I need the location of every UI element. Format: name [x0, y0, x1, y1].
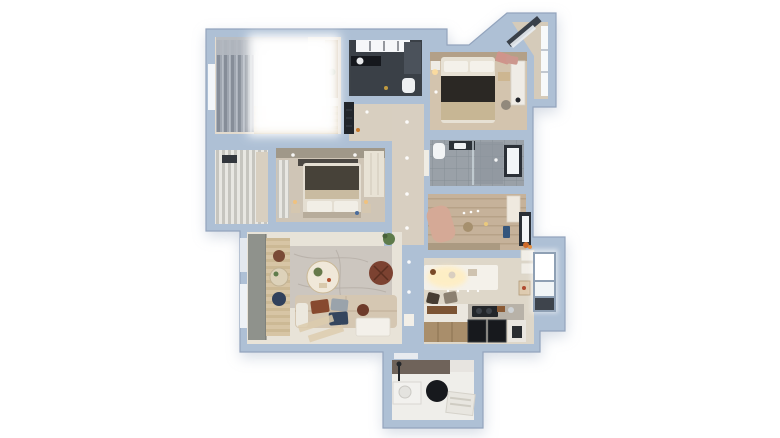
- corridor-spot3: [405, 192, 409, 196]
- table-leg4: [477, 290, 479, 292]
- living-decor-navy: [272, 292, 286, 306]
- balcony-b-beanbag: [426, 380, 448, 402]
- roomb-shelf: [428, 243, 500, 250]
- floor-plan-stage: [0, 0, 780, 438]
- corridor-door: [424, 150, 429, 176]
- living-side-table: [270, 268, 288, 286]
- kitchen-island-mat: [427, 306, 457, 314]
- bathroom1-vanity: [351, 56, 381, 66]
- bedroom2-pillow-right: [334, 201, 358, 212]
- balcony-b-lamp-head: [397, 362, 402, 367]
- living-plant-dark: [383, 234, 388, 239]
- kitchen-brown-box: [497, 306, 505, 312]
- roomb-blue-panel: [503, 226, 510, 238]
- coffee-table-berry: [327, 278, 331, 282]
- dining-bottle: [430, 269, 436, 275]
- dining-chair2: [443, 291, 458, 304]
- kitchen-black-cabinet2: [488, 320, 506, 342]
- kitchen-kettle: [508, 307, 514, 313]
- pillow-gray: [330, 298, 348, 312]
- table-leg1: [447, 290, 449, 292]
- entry-orange-item: [356, 128, 360, 132]
- bedroom2-wardrobe: [364, 151, 384, 197]
- coffee-table-plant: [314, 268, 323, 277]
- bedroom2-lamp-left: [293, 200, 297, 204]
- window-glare-core: [262, 46, 326, 126]
- bedroom2-headboard: [303, 212, 361, 218]
- bedroom2-spotlight1: [291, 153, 295, 157]
- sofa-ottoman: [357, 304, 369, 316]
- living-balcony-window1: [240, 238, 247, 272]
- dining-box: [468, 269, 477, 276]
- coffee-table-tray: [319, 283, 327, 288]
- kitchen-window-pane2: [535, 282, 554, 296]
- bathroom2-sink: [454, 143, 466, 149]
- bedroom1-pouf: [501, 100, 511, 110]
- bedroom1-pillow-left: [444, 61, 468, 72]
- balcony-b-accent-wall: [392, 360, 450, 374]
- living-side-plant: [274, 272, 279, 277]
- bedroom1-throw: [441, 102, 495, 120]
- bedroom1-lamp-glow: [432, 69, 438, 75]
- roomb-cabinet: [507, 196, 520, 222]
- table-leg2: [457, 290, 459, 292]
- entry-hall-floor: [349, 104, 392, 141]
- living-decor-brown: [273, 250, 285, 262]
- balcony-b-door: [394, 353, 418, 359]
- bedroom2-spotlight2: [353, 153, 357, 157]
- roomb-spot3: [477, 210, 480, 213]
- bathroom2-spotlight: [494, 158, 497, 161]
- bathroom1-brass-item: [384, 86, 388, 90]
- corridor-floor: [392, 104, 424, 245]
- bedroom1-duvet: [441, 76, 495, 104]
- kitchen-black-cabinet1: [468, 320, 486, 342]
- bedroom2-curtain: [277, 160, 289, 218]
- corridor-spot2: [405, 156, 409, 160]
- bedroom1-nightstand-left: [431, 61, 440, 70]
- divider-spot2: [407, 290, 411, 294]
- kitchen-wood-front: [424, 322, 468, 342]
- corridor-spot1: [405, 120, 409, 124]
- roomb-spot1: [463, 212, 466, 215]
- washer-door: [399, 386, 411, 398]
- roomb-window-pane: [522, 216, 529, 242]
- table-leg3: [467, 290, 469, 292]
- bedroom2-nightstand-left: [291, 204, 300, 213]
- dining-plate: [449, 272, 456, 279]
- living-tv-cabinet: [248, 234, 266, 340]
- living-white-table: [356, 318, 390, 336]
- floor-plan-svg: [0, 0, 780, 438]
- kitchen-cabinet-inset: [512, 326, 522, 338]
- pillow-brown: [310, 299, 330, 314]
- kitchen-cooktop: [472, 306, 498, 317]
- bathroom1-window: [356, 40, 410, 52]
- living-balcony-window2: [240, 284, 247, 328]
- bathroom1-marble-panel: [404, 42, 421, 74]
- kitchen-flowers2: [528, 245, 532, 249]
- balcony-tr-window: [541, 26, 548, 96]
- study-floor-strip: [256, 152, 268, 222]
- cooktop-burner1: [476, 308, 482, 314]
- bedroom2-throw: [305, 190, 359, 199]
- entry-spotlight: [365, 110, 368, 113]
- bedroom1-shelf-right: [498, 72, 510, 81]
- divider-art: [404, 314, 414, 326]
- roomb-lamp: [484, 222, 488, 226]
- apartment-3d-plan: [206, 13, 565, 428]
- bathroom2-window-pane: [507, 148, 519, 174]
- bathroom1-toilet: [402, 78, 415, 93]
- balcony-tr-dark-item: [516, 98, 521, 103]
- bedroom1-pillow-right: [470, 61, 494, 72]
- cooktop-burner2: [486, 308, 492, 314]
- bathroom2-shower-floor: [475, 142, 503, 184]
- kitchen-art-dot: [522, 286, 526, 290]
- balcony-b-white-wall: [450, 360, 474, 372]
- study-shelf: [222, 155, 237, 163]
- bedroom2-lamp-right: [364, 200, 368, 204]
- kitchen-window-pane1: [535, 254, 554, 280]
- roomb-spot2: [470, 211, 473, 214]
- bedroom2-nightstand-right: [362, 204, 371, 213]
- roomb-stool: [463, 222, 473, 232]
- balcony-b-lamp-pole: [398, 366, 400, 381]
- kitchen-window-sash: [535, 298, 554, 310]
- coffee-table: [307, 261, 339, 293]
- bedroom2-pillow-left: [307, 201, 332, 212]
- room-a-window-left: [208, 64, 215, 110]
- corridor-spot4: [405, 226, 409, 230]
- divider-spot1: [407, 260, 411, 264]
- bedroom2-blue-item: [355, 211, 359, 215]
- bathroom2-toilet: [433, 143, 445, 159]
- bathroom1-sink: [357, 58, 364, 65]
- bedroom1-spotlight: [434, 90, 437, 93]
